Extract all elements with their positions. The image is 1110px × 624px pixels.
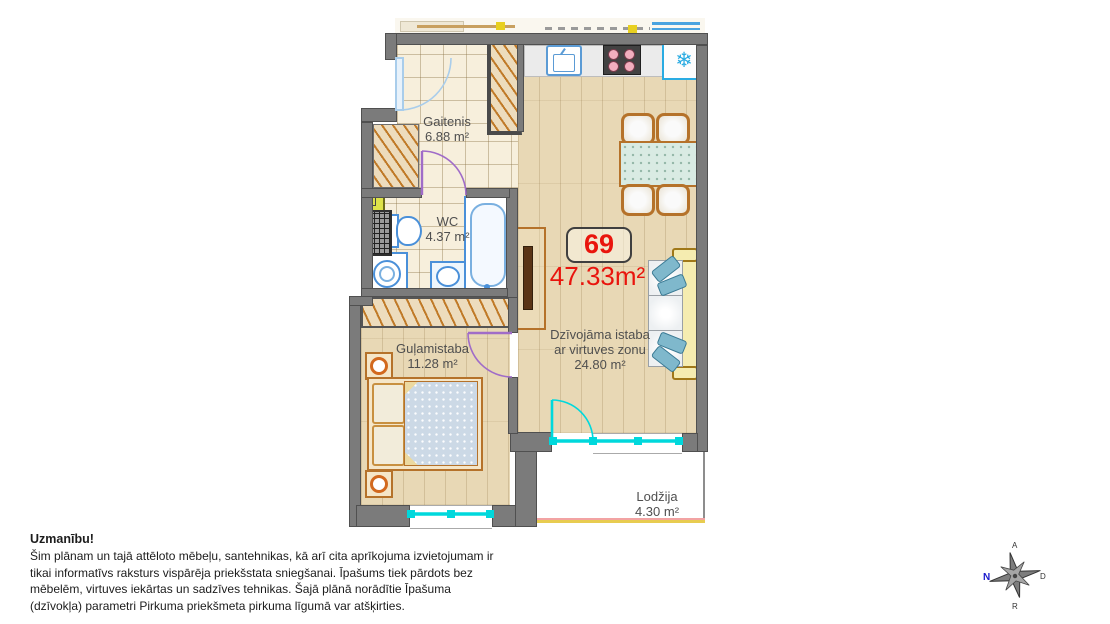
fridge-snowflake: ❄	[675, 49, 693, 72]
wall-top	[393, 33, 708, 45]
loggia-area: 4.30 m²	[612, 504, 702, 519]
wall-loggia-window-right	[682, 433, 698, 452]
disclaimer-line: tikai informatīvs raksturs vispārēja pri…	[30, 565, 500, 582]
compass-rose: N A D R	[982, 538, 1048, 612]
hallway-name: Gaitenis	[397, 114, 497, 129]
wall-bedroom-living-upper	[508, 296, 518, 333]
wc-label: WC 4.37 m²	[400, 214, 495, 244]
dining-chair	[656, 184, 690, 216]
compass-label-right: D	[1040, 572, 1046, 581]
wc-area: 4.37 m²	[400, 229, 495, 244]
wall-left-jog	[361, 108, 397, 122]
bed-pillow	[372, 425, 405, 466]
loggia-label: Lodžija 4.30 m²	[612, 489, 702, 519]
wall-left-upper	[385, 33, 397, 60]
hallway-area: 6.88 m²	[397, 129, 497, 144]
unit-number-badge: 69	[566, 227, 632, 263]
stove	[603, 45, 641, 75]
bedroom-label: Guļamistaba 11.28 m²	[375, 341, 490, 371]
living-label: Dzīvojāma istaba ar virtuves zonu 24.80 …	[538, 327, 662, 372]
wall-wc-right	[506, 188, 518, 298]
wall-left-mid	[361, 122, 373, 302]
wall-left-lower	[349, 296, 361, 527]
compass-label-bottom: R	[1012, 602, 1018, 611]
hallway-label: Gaitenis 6.88 m²	[397, 114, 497, 144]
wall-hallway-right	[517, 44, 524, 132]
disclaimer-line: mēbelēm, virtuves iekārtas un sadzīves t…	[30, 581, 500, 598]
wall-loggia-step	[510, 432, 552, 452]
bedroom-area: 11.28 m²	[375, 356, 490, 371]
wc-name: WC	[400, 214, 495, 229]
dining-chair	[621, 184, 655, 216]
living-name: Dzīvojāma istaba	[538, 327, 662, 342]
disclaimer-title: Uzmanību!	[30, 531, 500, 548]
neighbor-window-line	[652, 22, 700, 25]
floor-plan-page: { "plan": { "unit_badge": "69", "total_a…	[0, 0, 1110, 624]
bedroom-window-sill	[410, 505, 492, 529]
sink-basin	[553, 54, 575, 72]
compass-label-north: N	[983, 572, 990, 583]
bedroom-name: Guļamistaba	[375, 341, 490, 356]
neighbor-yellow-tick	[496, 22, 505, 30]
disclaimer: Uzmanību! Šim plānam un tajā attēloto mē…	[30, 531, 500, 615]
wall-bedroom-living-lower	[508, 377, 518, 434]
tv-screen	[523, 246, 533, 310]
unit-number: 69	[584, 229, 614, 259]
kitchen-sink	[546, 45, 582, 76]
bed	[367, 377, 483, 471]
total-area-text: 47.33m²	[540, 261, 655, 292]
nightstand	[365, 470, 393, 498]
wall-wc-top-right	[466, 188, 510, 198]
neighbor-window-line	[652, 28, 700, 30]
dining-table	[619, 141, 701, 187]
loggia-edge-yellow	[537, 520, 705, 523]
balcony-door-gap	[552, 433, 593, 452]
bathtub	[464, 196, 512, 298]
bed-mattress	[404, 381, 478, 466]
wall-right	[696, 45, 708, 452]
bed-pillow	[372, 383, 405, 424]
bedroom-wardrobe	[361, 297, 512, 328]
loggia-name: Lodžija	[612, 489, 702, 504]
lamp-icon	[370, 475, 388, 493]
wall-wc-bottom	[361, 288, 508, 297]
neighbor-yellow-tick	[628, 25, 637, 33]
disclaimer-line: (dzīvokļa) parametri Pirkuma priekšmeta …	[30, 598, 500, 615]
living-area: 24.80 m²	[538, 357, 662, 372]
wall-left-lower-jog	[349, 296, 373, 306]
wall-bottom-left	[356, 505, 410, 527]
neighbor-unit-strip	[395, 18, 705, 33]
wall-wc-top-left	[361, 188, 422, 198]
compass-label-top: A	[1012, 541, 1018, 550]
disclaimer-line: Šim plānam un tajā attēloto mēbeļu, sant…	[30, 548, 500, 565]
living-subtitle: ar virtuves zonu	[538, 342, 662, 357]
living-window-sill	[593, 433, 682, 454]
